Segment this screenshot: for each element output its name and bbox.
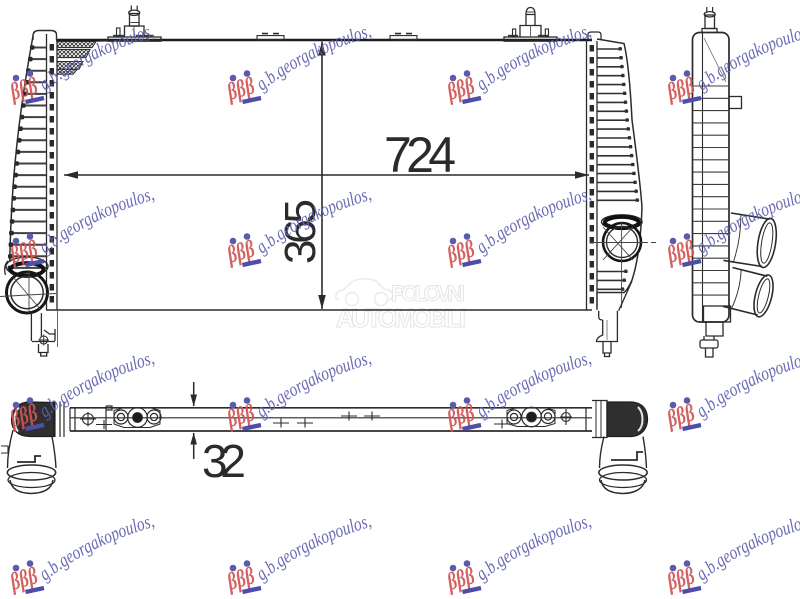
- svg-text:724: 724: [384, 127, 455, 183]
- svg-text:AUTOMOBILI: AUTOMOBILI: [336, 303, 466, 333]
- svg-text:32: 32: [202, 435, 246, 487]
